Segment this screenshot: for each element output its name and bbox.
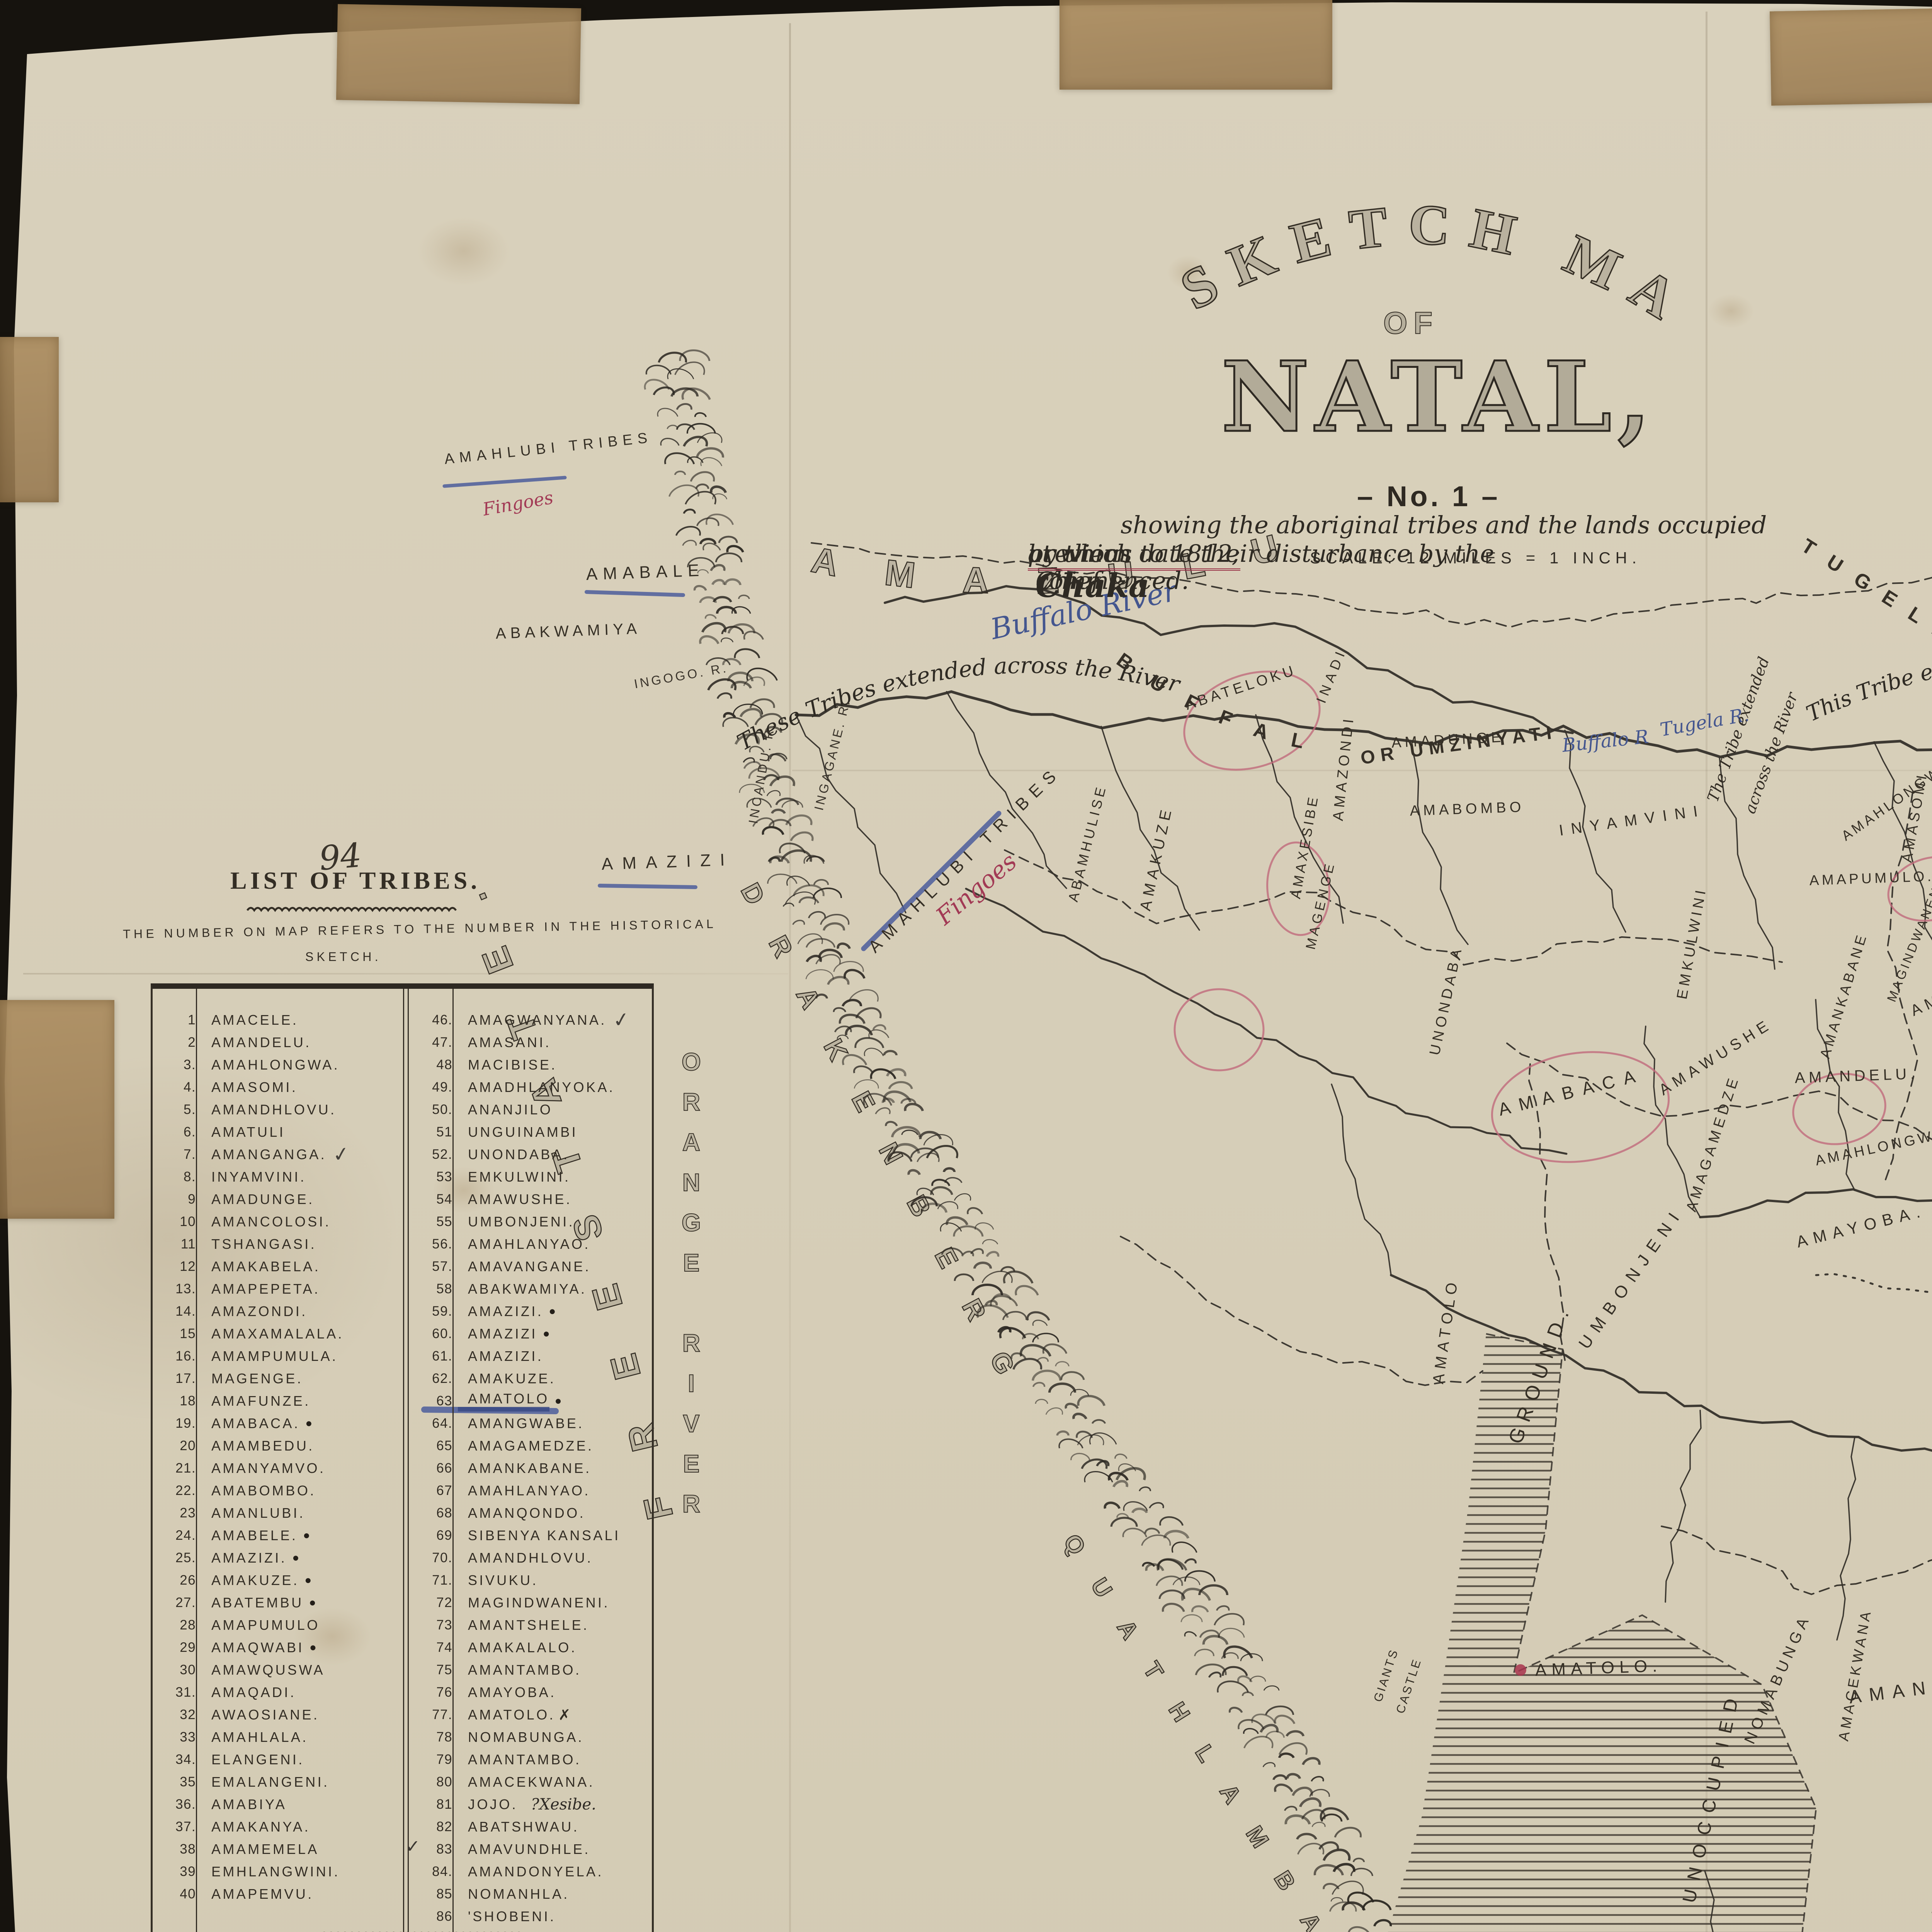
tribe-number: 61.	[409, 1349, 458, 1364]
tribe-row: 9AMADUNGE.	[153, 1188, 403, 1211]
tribe-number: 48	[409, 1057, 458, 1073]
dot-marker-icon: ●	[309, 1596, 316, 1609]
tribe-row: 63AMATOLO●	[409, 1390, 650, 1412]
tribe-row: 39EMHLANGWINI.	[153, 1861, 403, 1883]
map-label: AMAHLUBI TRIBES	[865, 762, 1065, 957]
tribe-row: 5.AMANDHLOVU.	[153, 1099, 403, 1121]
tribe-number: 50.	[409, 1102, 458, 1117]
map-label: AMACEKWANA	[1835, 1607, 1875, 1742]
tribe-row: 25.AMAZIZI.●	[153, 1547, 403, 1569]
tribe-name: AMAKANYA.	[201, 1819, 310, 1835]
tribe-name: AMANGANGA.	[201, 1146, 327, 1163]
tribe-row: 67AMAHLANYAO.	[409, 1480, 650, 1502]
tribe-number: 16.	[153, 1349, 201, 1364]
tribe-row: 55UMBONJENI.	[409, 1211, 650, 1233]
tribe-name: AMANKABANE.	[458, 1460, 591, 1476]
map-label: AMATOLO	[1430, 1277, 1462, 1385]
tribe-name: AMAWUSHE.	[458, 1191, 572, 1207]
tribe-row: 40AMAPEMVU.	[153, 1883, 403, 1905]
map-label: AMAHLONGWA	[1814, 1125, 1932, 1169]
tribe-number: 53	[409, 1169, 458, 1185]
map-label: AMABOMBO	[1410, 799, 1525, 820]
map-label: EMKULWINI	[1674, 886, 1710, 1001]
tribe-name: AMANYAMVO.	[201, 1460, 325, 1476]
tribe-name: AMAZIZI.	[458, 1348, 543, 1364]
tribe-number: 13.	[153, 1281, 201, 1297]
tribe-name: AMANLUBI.	[201, 1505, 305, 1521]
tribe-number: 17.	[153, 1371, 201, 1386]
map-label: AMAZONDI	[1330, 715, 1357, 822]
tribe-name: AMAPEMVU.	[201, 1886, 314, 1902]
map-label: AMAGAMEDZE	[1683, 1073, 1743, 1214]
tribe-number: 18	[153, 1393, 201, 1409]
dot-marker-icon: ●	[310, 1641, 316, 1654]
tribe-number: 8.	[153, 1169, 201, 1185]
tribe-name: UNONDABA.	[458, 1146, 570, 1163]
tribe-number: 23	[153, 1505, 201, 1521]
list-heading: LIST OF TRIBES.	[230, 866, 480, 895]
tribe-row: 76AMAYOBA.	[409, 1681, 650, 1704]
tribe-name: AMAPEPETA.	[201, 1281, 320, 1297]
tribe-name: AMABOMBO.	[201, 1483, 316, 1499]
map-label: MAGENGE	[1303, 860, 1338, 951]
map-label: INGAGANE. R.	[811, 697, 854, 812]
tribe-number: 38	[153, 1842, 201, 1857]
tribe-row: 34.ELANGENI.	[153, 1748, 403, 1771]
tape-strip	[1770, 7, 1932, 106]
tribe-name: AMANTAMBO.	[458, 1752, 581, 1768]
dot-marker-icon: ●	[549, 1305, 556, 1318]
tribe-row: 49.AMADHLANYOKA.	[409, 1076, 650, 1099]
tribe-number: 25.	[153, 1550, 201, 1566]
tribe-row: 53EMKULWINI.	[409, 1166, 650, 1188]
tribe-number: 32	[153, 1707, 201, 1723]
tribe-name: EMALANGENI.	[201, 1774, 329, 1790]
tribe-name: AMASANI.	[458, 1034, 551, 1051]
tribe-row: 64.AMANGWABE.	[409, 1412, 650, 1435]
tribe-row: 1AMACELE.	[153, 1009, 403, 1031]
tribe-name: AMANDHLOVU.	[458, 1550, 593, 1566]
tribe-name: AMAFUNZE.	[201, 1393, 311, 1409]
tribe-number: 78	[409, 1730, 458, 1745]
tape-strip	[1060, 0, 1332, 90]
tribe-name: AMAYOBA.	[458, 1684, 556, 1701]
tribe-number: 57.	[409, 1259, 458, 1274]
tribe-number: 30	[153, 1662, 201, 1678]
tribe-name: AMAGAMEDZE.	[458, 1438, 594, 1454]
tribe-name: AMACEKWANA.	[458, 1774, 595, 1790]
tribe-number: 62.	[409, 1371, 458, 1386]
dot-marker-icon: ●	[304, 1574, 311, 1587]
tribe-number: 10	[153, 1214, 201, 1230]
tribe-row: 13.AMAPEPETA.	[153, 1278, 403, 1300]
tribe-column-2: 46.AMAGWANYANA.✓47.AMASANI.48MACIBISE.49…	[409, 1009, 650, 1932]
tribe-number: 5.	[153, 1102, 201, 1117]
tribe-name: AMATOLO.	[458, 1707, 555, 1723]
tribe-row: 10AMANCOLOSI.	[153, 1211, 403, 1233]
tribe-number: 12	[153, 1259, 201, 1274]
tribe-number: 20	[153, 1438, 201, 1454]
tribe-number: 84.	[409, 1864, 458, 1879]
tribe-number: 26	[153, 1573, 201, 1588]
tribe-number: 37.	[153, 1819, 201, 1835]
tribe-row: 30AMAWQUSWA	[153, 1659, 403, 1681]
tribe-number: 36.	[153, 1797, 201, 1812]
tribe-number: 82	[409, 1819, 458, 1835]
tribe-number: 59.	[409, 1304, 458, 1319]
tribe-name: AMAXAMALALA.	[201, 1326, 344, 1342]
map-label: Buffalo R	[1561, 726, 1650, 757]
tribe-row: 84.AMANDONYELA.	[409, 1861, 650, 1883]
tribe-row: 59.AMAZIZI.●	[409, 1300, 650, 1323]
tribe-name: AMANDELU.	[201, 1034, 311, 1051]
tribe-row: 36.AMABIYA	[153, 1793, 403, 1816]
title-of: OF	[1383, 305, 1439, 341]
tribe-number: 49.	[409, 1080, 458, 1095]
tribe-name: AMAVANGANE.	[458, 1259, 591, 1275]
tribe-row: 27.ABATEMBU●	[153, 1592, 403, 1614]
cross-marker-icon: ✗	[558, 1706, 571, 1723]
tribe-name: AMAGWANYANA.	[458, 1012, 607, 1028]
tribe-number: 2	[153, 1035, 201, 1050]
tribe-name: AMANQONDO.	[458, 1505, 585, 1521]
tribe-number: 21.	[153, 1461, 201, 1476]
tribe-name: AMABIYA	[201, 1796, 287, 1813]
map-label: ABATELOKU	[1183, 662, 1299, 714]
tribe-row: 18AMAFUNZE.	[153, 1390, 403, 1412]
tribe-number: 63	[409, 1393, 458, 1409]
list-divider-gap	[153, 1905, 403, 1932]
tribe-row: 81JOJO.?Xesibe.	[409, 1793, 650, 1816]
tribe-number: 3.	[153, 1057, 201, 1073]
tribe-name: AMANTAMBO.	[458, 1662, 581, 1678]
tribe-row: 62.AMAKUZE.	[409, 1367, 650, 1390]
tribe-name: MACIBISE.	[458, 1057, 557, 1073]
tribe-row: 23AMANLUBI.	[153, 1502, 403, 1524]
tribe-number: 1	[153, 1012, 201, 1028]
tribe-number: 66	[409, 1461, 458, 1476]
tribe-number: 75	[409, 1662, 458, 1678]
tribe-row: 3.AMAHLONGWA.	[153, 1054, 403, 1076]
tribe-number: 60.	[409, 1326, 458, 1342]
tribe-number: 70.	[409, 1550, 458, 1566]
tribe-number: 65	[409, 1438, 458, 1454]
tribe-row: 29AMAQWABI●	[153, 1636, 403, 1659]
tribe-row: 22.AMABOMBO.	[153, 1480, 403, 1502]
tribe-row: 70.AMANDHLOVU.	[409, 1547, 650, 1569]
tribe-number: 81	[409, 1797, 458, 1812]
dot-marker-icon: ●	[555, 1395, 562, 1408]
map-label: CASTLE	[1393, 1656, 1424, 1715]
tribe-row: 50.ANANJILO	[409, 1099, 650, 1121]
tribe-name: AMASOMI.	[201, 1079, 298, 1095]
map-label: AMAKUZE	[1137, 804, 1176, 913]
map-label: Fingoes	[481, 487, 555, 520]
pencil-check-icon: ✓	[405, 1836, 420, 1857]
tribe-name: UNGUINAMBI	[458, 1124, 578, 1140]
tape-strip	[0, 1000, 114, 1219]
tribe-name: AMAKUZE.	[458, 1371, 556, 1387]
map-scale: SCALE: 12 MILES = 1 INCH.	[1310, 549, 1641, 567]
map-label: AMANDELU.	[1794, 1065, 1918, 1087]
tribe-row: 65AMAGAMEDZE.	[409, 1435, 650, 1457]
tribe-number: 39	[153, 1864, 201, 1879]
map-label: AMAWUSHE	[1656, 1015, 1776, 1099]
map-label: GROUND.	[1504, 1299, 1577, 1447]
tribe-number: 73	[409, 1617, 458, 1633]
tribe-row: 77.AMATOLO.✗	[409, 1704, 650, 1726]
tribe-row: 6.AMATULI	[153, 1121, 403, 1143]
map-label: ABAKWAMIYA	[495, 620, 641, 643]
tribe-row: 69SIBENYA KANSALI	[409, 1524, 650, 1547]
tribe-name: AMAZIZI.	[201, 1550, 287, 1566]
tribe-list-table: 1AMACELE.2AMANDELU.3.AMAHLONGWA.4.AMASOM…	[151, 983, 654, 1932]
tribe-row: 21.AMANYAMVO.	[153, 1457, 403, 1480]
tribe-row: 87.TSHANGASE.	[409, 1928, 650, 1932]
tribe-row: 31.AMAQADI.	[153, 1681, 403, 1704]
tribe-name: SIBENYA KANSALI	[458, 1527, 620, 1544]
tribe-name: AMAHLANYAO.	[458, 1236, 590, 1252]
tribe-row: 71.SIVUKU.	[409, 1569, 650, 1592]
map-label: UNONDABA	[1427, 944, 1466, 1057]
tribe-name: NOMANHLA.	[458, 1886, 570, 1902]
tribe-name: AMANCOLOSI.	[201, 1214, 331, 1230]
dot-marker-icon: ●	[303, 1529, 310, 1542]
tribe-name: ANANJILO	[458, 1102, 553, 1118]
tribe-name: ABAKWAMIYA.	[458, 1281, 587, 1297]
tribe-name: JOJO.	[458, 1796, 518, 1813]
tribe-name: AMADUNGE.	[201, 1191, 315, 1207]
tribe-column-1: 1AMACELE.2AMANDELU.3.AMAHLONGWA.4.AMASOM…	[153, 1009, 403, 1932]
subtitle-3c: commenced.	[1036, 566, 1189, 595]
tribe-number: 33	[153, 1730, 201, 1745]
tribe-row: 79AMANTAMBO.	[409, 1748, 650, 1771]
map-label: INADI	[1313, 646, 1350, 706]
tribe-number: 46.	[409, 1012, 458, 1028]
tribe-name: AMAMEMELA	[201, 1841, 319, 1857]
tribe-number: 64.	[409, 1416, 458, 1431]
tribe-name: NOMABUNGA.	[458, 1729, 584, 1745]
tribe-name: AMANDHLOVU.	[201, 1102, 336, 1118]
tribe-number: 11	[153, 1236, 201, 1252]
tribe-row: 15AMAXAMALALA.	[153, 1323, 403, 1345]
map-label: AMATOLO.	[1535, 1656, 1662, 1680]
tribe-row: 24.AMABELE.●	[153, 1524, 403, 1547]
tribe-row: 82ABATSHWAU.	[409, 1816, 650, 1838]
tribe-row: 17.MAGENGE.	[153, 1367, 403, 1390]
tribe-row: 19.AMABACA.●	[153, 1412, 403, 1435]
map-label: AMADUNGE	[1391, 729, 1505, 752]
title-subtitle-1: showing the aboriginal tribes and the la…	[1121, 511, 1767, 539]
tribe-name: AMATULI	[201, 1124, 285, 1140]
tribe-row: 66AMANKABANE.	[409, 1457, 650, 1480]
tribe-number: 80	[409, 1774, 458, 1790]
tribe-row: 58ABAKWAMIYA.	[409, 1278, 650, 1300]
tribe-name: AMATOLO	[458, 1391, 549, 1412]
tribe-number: 24.	[153, 1528, 201, 1543]
tribe-row: 16.AMAMPUMULA.	[153, 1345, 403, 1367]
tribe-name: UMBONJENI.	[458, 1214, 575, 1230]
tribe-row: 28AMAPUMULO	[153, 1614, 403, 1636]
map-label: UMBONJENI	[1575, 1203, 1688, 1353]
tribe-row: 75AMANTAMBO.	[409, 1659, 650, 1681]
tribe-name: 'SHOBENI.	[458, 1908, 556, 1925]
map-label: AMAYOBA.	[1794, 1201, 1928, 1252]
tribe-name: SIVUKU.	[458, 1572, 538, 1588]
tribe-name: EMHLANGWINI.	[201, 1864, 340, 1880]
tribe-row: 7.AMANGANGA.✓	[153, 1143, 403, 1166]
tribe-number: 77.	[409, 1707, 458, 1723]
tribe-number: 31.	[153, 1685, 201, 1700]
tribe-name: ABATEMBU	[201, 1595, 304, 1611]
pencil-check-icon: ✓	[331, 1142, 351, 1167]
tribe-row: 72MAGINDWANENI.	[409, 1592, 650, 1614]
tribe-row: 61.AMAZIZI.	[409, 1345, 650, 1367]
tribe-name: AMAMBEDU.	[201, 1438, 315, 1454]
tribe-name: INYAMVINI.	[201, 1169, 306, 1185]
pencil-check-icon: ✓	[611, 1007, 631, 1032]
tribe-name: AMAMPUMULA.	[201, 1348, 338, 1364]
title-number: – No. 1 –	[1357, 480, 1500, 513]
tribe-number: 52.	[409, 1147, 458, 1162]
tribe-number: 74	[409, 1640, 458, 1655]
tribe-row: 20AMAMBEDU.	[153, 1435, 403, 1457]
tribe-row: 86'SHOBENI.	[409, 1905, 650, 1928]
tribe-row: 12AMAKABELA.	[153, 1255, 403, 1278]
tribe-name: AWAOSIANE.	[201, 1707, 319, 1723]
tribe-number: 29	[153, 1640, 201, 1655]
map-label: ABAMHULISE	[1065, 783, 1110, 903]
map-label: MAGINDWANENI.	[1884, 873, 1932, 1004]
tribe-number: 40	[153, 1886, 201, 1902]
tribe-number: 71.	[409, 1573, 458, 1588]
tribe-name: AMAZIZI.	[458, 1303, 543, 1320]
tribe-number: 9	[153, 1192, 201, 1207]
map-label: ORANGE RIVER	[677, 1048, 706, 1530]
tribe-number: 51	[409, 1124, 458, 1140]
tribe-number: 76	[409, 1685, 458, 1700]
tribe-name: AMAHLONGWA.	[201, 1057, 340, 1073]
tribe-row: 48MACIBISE.	[409, 1054, 650, 1076]
tribe-name: AMAKALALO.	[458, 1639, 577, 1656]
tribe-row: 47.AMASANI.	[409, 1031, 650, 1054]
tribe-row: 46.AMAGWANYANA.✓	[409, 1009, 650, 1031]
tribe-name: ELANGENI.	[201, 1752, 304, 1768]
map-label: AMAPUMULO.	[1809, 868, 1932, 889]
tribe-number: 54	[409, 1192, 458, 1207]
tribe-row: 14.AMAZONDI.	[153, 1300, 403, 1323]
map-label: INYAMVINI	[1558, 802, 1706, 840]
tribe-row: 4.AMASOMI.	[153, 1076, 403, 1099]
map-label: AMABALE	[586, 561, 705, 584]
dot-marker-icon: ●	[305, 1417, 312, 1430]
tribe-number: 27.	[153, 1595, 201, 1611]
tribe-number: 86	[409, 1909, 458, 1924]
tribe-row: 33AMAHLALA.	[153, 1726, 403, 1748]
tribe-row: 51UNGUINAMBI	[409, 1121, 650, 1143]
tribe-number: 85	[409, 1886, 458, 1902]
list-note-line2: SKETCH.	[305, 950, 381, 964]
tribe-row: 32AWAOSIANE.	[153, 1704, 403, 1726]
tribe-number: 69	[409, 1528, 458, 1543]
map-label: AMABACA	[1496, 1064, 1646, 1120]
map-label: UNOCCUPIED	[1679, 1688, 1745, 1905]
tribe-row: 52.UNONDABA.	[409, 1143, 650, 1166]
map-label: AMAZIZI	[601, 850, 734, 874]
tribe-row: 11TSHANGASI.	[153, 1233, 403, 1255]
handwritten-annotation: ?Xesibe.	[531, 1796, 596, 1813]
tribe-row: 74AMAKALALO.	[409, 1636, 650, 1659]
tribe-row: 26AMAKUZE.●	[153, 1569, 403, 1592]
map-label: AMAHLUBI TRIBES	[444, 429, 653, 468]
tribe-number: 55	[409, 1214, 458, 1230]
dot-marker-icon: ●	[543, 1327, 550, 1340]
tribe-name: AMANDONYELA.	[458, 1864, 604, 1880]
tribe-name: ABATSHWAU.	[458, 1819, 579, 1835]
tribe-number: 67	[409, 1483, 458, 1498]
tribe-row: 38AMAMEMELA	[153, 1838, 403, 1861]
tribe-name: EMKULWINI.	[458, 1169, 570, 1185]
tribe-number: 68	[409, 1505, 458, 1521]
tribe-row: 78NOMABUNGA.	[409, 1726, 650, 1748]
tribe-number: 4.	[153, 1080, 201, 1095]
map-label: AMAXESIBE	[1287, 793, 1322, 900]
map-label: INGOGO. R.	[633, 660, 729, 691]
tribe-number: 72	[409, 1595, 458, 1611]
tribe-row: 2AMANDELU.	[153, 1031, 403, 1054]
tribe-number: 15	[153, 1326, 201, 1342]
title-natal: NATAL,	[1221, 340, 1592, 454]
tribe-name: AMADHLANYOKA.	[458, 1079, 615, 1095]
tribe-row: 37.AMAKANYA.	[153, 1816, 403, 1838]
tribe-name: AMACELE.	[201, 1012, 298, 1028]
tape-strip	[336, 4, 581, 104]
map-label: D R A K E N B E R G	[735, 878, 1029, 1394]
tribe-name: AMAKABELA.	[201, 1259, 320, 1275]
tribe-number: 34.	[153, 1752, 201, 1767]
tribe-name: AMAZONDI.	[201, 1303, 308, 1320]
dot-marker-icon: ●	[292, 1551, 299, 1565]
tribe-name: AMAZIZI	[458, 1326, 537, 1342]
tribe-row: 56.AMAHLANYAO.	[409, 1233, 650, 1255]
table-rule	[408, 989, 409, 1932]
tribe-name: AMAPUMULO	[201, 1617, 320, 1633]
tribe-row: ✓83AMAVUNDHLE.	[409, 1838, 650, 1861]
table-rule	[403, 989, 404, 1932]
tribe-name: AMAHLALA.	[201, 1729, 308, 1745]
tribe-number: 7.	[153, 1147, 201, 1162]
tribe-row: 35EMALANGENI.	[153, 1771, 403, 1793]
tribe-row: 8.INYAMVINI.	[153, 1166, 403, 1188]
map-label: GIANTS	[1371, 1647, 1401, 1704]
tribe-row: 57.AMAVANGANE.	[409, 1255, 650, 1278]
tribe-number: 58	[409, 1281, 458, 1297]
tribe-name: AMAQWABI	[201, 1639, 304, 1656]
tribe-number: 28	[153, 1617, 201, 1633]
tribe-name: AMANGWABE.	[458, 1415, 584, 1432]
tribe-row: 73AMANTSHELE.	[409, 1614, 650, 1636]
tribe-name: AMAKUZE.	[201, 1572, 299, 1588]
map-label: Q U A T H L A M B A	[1058, 1529, 1334, 1932]
tribe-name: AMAHLANYAO.	[458, 1483, 590, 1499]
tribe-name: TSHANGASI.	[201, 1236, 316, 1252]
tribe-row: 85NOMANHLA.	[409, 1883, 650, 1905]
tribe-number: 22.	[153, 1483, 201, 1498]
photo-backdrop: SKETCH MAPA M A Z U L U .I N D I A N O C…	[0, 0, 1932, 1932]
tribe-name: MAGENGE.	[201, 1371, 303, 1387]
tribe-name: AMABACA.	[201, 1415, 300, 1432]
tribe-number: 19.	[153, 1416, 201, 1431]
